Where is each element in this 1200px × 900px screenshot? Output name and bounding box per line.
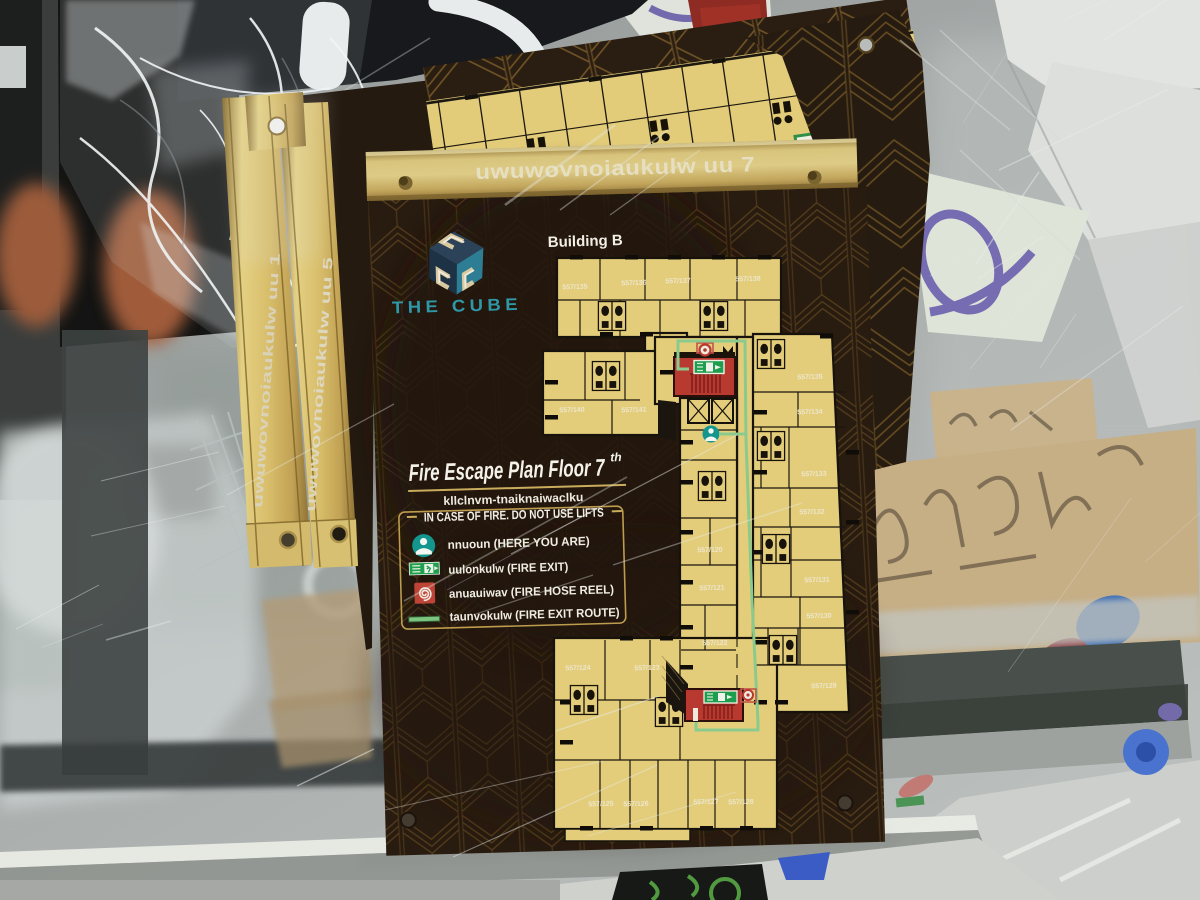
svg-text:557/138: 557/138 (735, 276, 761, 284)
svg-text:557/124: 557/124 (565, 665, 591, 673)
svg-text:557/135: 557/135 (797, 374, 823, 382)
svg-text:557/121: 557/121 (699, 585, 725, 593)
svg-text:557/130: 557/130 (806, 613, 832, 621)
svg-text:557/125: 557/125 (588, 801, 614, 809)
svg-text:557/126: 557/126 (623, 801, 649, 809)
svg-text:557/123: 557/123 (634, 665, 660, 673)
svg-text:THE CUBE: THE CUBE (392, 295, 522, 318)
svg-text:557/137: 557/137 (665, 278, 691, 286)
svg-text:557/133: 557/133 (801, 471, 827, 479)
svg-text:557/140: 557/140 (559, 407, 585, 415)
svg-text:557/128: 557/128 (728, 799, 754, 807)
svg-text:557/135: 557/135 (562, 284, 588, 292)
svg-text:557/131: 557/131 (804, 577, 830, 585)
svg-text:557/132: 557/132 (799, 509, 825, 517)
svg-text:557/134: 557/134 (797, 409, 823, 417)
svg-text:557/141: 557/141 (621, 407, 647, 415)
svg-text:th: th (610, 450, 622, 464)
svg-text:557/127: 557/127 (693, 799, 719, 807)
svg-text:Fire Escape Plan Floor 7: Fire Escape Plan Floor 7 (408, 454, 606, 486)
svg-text:557/122: 557/122 (702, 640, 728, 648)
svg-text:Building B: Building B (548, 232, 624, 251)
svg-text:557/120: 557/120 (697, 547, 723, 555)
svg-text:557/129: 557/129 (811, 683, 837, 691)
svg-text:557/136: 557/136 (621, 280, 647, 288)
